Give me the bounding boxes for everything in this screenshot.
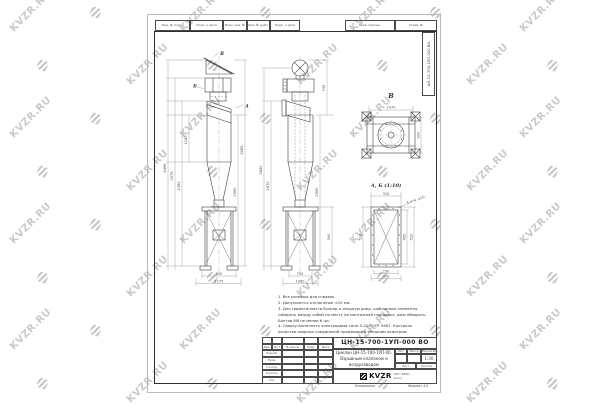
watermark-stamp-icon: [546, 59, 559, 72]
top-stamp-cell: Перв. примен.: [345, 20, 395, 31]
organization-cell: KVZR ООО «КВЗР» kvzr.ru: [333, 369, 437, 384]
watermark-stamp-icon: [36, 165, 49, 178]
watermark-stamp-icon: [89, 112, 102, 125]
watermark-text: KVZR.RU: [518, 307, 564, 353]
watermark-text: KVZR.RU: [518, 201, 564, 247]
watermark-stamp-icon: [546, 165, 559, 178]
margin-designation-cell: ЦН-15-700-1УП-000 ВО: [422, 32, 435, 96]
watermark-text: KVZR.RU: [8, 307, 54, 353]
signature-cell: [318, 364, 333, 371]
margin-designation-text: ЦН-15-700-1УП-000 ВО: [427, 41, 431, 86]
watermark-text: KVZR.RU: [518, 95, 564, 141]
name-line: воздуховодом: [349, 362, 379, 368]
watermark-stamp-icon: [546, 377, 559, 390]
watermark-stamp-icon: [36, 271, 49, 284]
signature-cell: [304, 350, 318, 357]
watermark-text: KVZR.RU: [8, 95, 54, 141]
signature-cell: [282, 357, 304, 364]
watermark-stamp-icon: [89, 6, 102, 19]
mass-value: [407, 354, 421, 363]
signature-cell: [318, 337, 333, 344]
signature-cell: [282, 350, 304, 357]
signature-cell: Пров.: [262, 357, 282, 364]
watermark-text: KVZR.RU: [465, 254, 511, 300]
top-stamp-cell: Справ. №: [395, 20, 437, 31]
notes-block: 1. Все размеры для справок.2. Допускаетс…: [278, 294, 428, 335]
watermark-text: KVZR.RU: [8, 0, 54, 34]
watermark-stamp-icon: [89, 218, 102, 231]
note-line: 4. Сварку выполнять электродами типа Э-4…: [278, 323, 428, 335]
signature-cell: [304, 357, 318, 364]
logo-subtext-2: kvzr.ru: [394, 377, 410, 380]
watermark-stamp-icon: [36, 377, 49, 390]
watermark-text: KVZR.RU: [465, 148, 511, 194]
signature-cell: [272, 337, 282, 344]
signature-cell: [304, 370, 318, 377]
signature-cell: [262, 337, 272, 344]
signature-cell: [304, 364, 318, 371]
signature-cell: Т.контр.: [262, 364, 282, 371]
signature-cell: [282, 364, 304, 371]
signature-cell: Н.контр.: [262, 370, 282, 377]
signature-cell: [304, 337, 318, 344]
watermark-text: KVZR.RU: [518, 0, 564, 34]
watermark-text: KVZR.RU: [465, 360, 511, 405]
titleblock-name: Циклон ЦН-15-700-1УП-00. Взрывным клапан…: [333, 349, 395, 369]
watermark-stamp-icon: [36, 59, 49, 72]
signature-cell: [318, 377, 333, 384]
signature-cell: Утв.: [262, 377, 282, 384]
signature-cell: [304, 377, 318, 384]
signature-cell: [282, 370, 304, 377]
watermark-text: KVZR.RU: [8, 201, 54, 247]
signature-cell: [318, 370, 333, 377]
top-stamp-cell: Инв. № дубл.: [247, 20, 270, 31]
signature-cell: [318, 350, 333, 357]
signature-cell: [282, 377, 304, 384]
page: { "watermark": { "text": "KVZR.RU", "col…: [0, 0, 600, 400]
kvzr-logo-text: KVZR: [369, 373, 392, 380]
kvzr-logo: KVZR ООО «КВЗР» kvzr.ru: [360, 373, 410, 380]
signature-cell: Разраб.: [262, 350, 282, 357]
scale-value: 1:30: [421, 354, 437, 363]
watermark-text: KVZR.RU: [465, 42, 511, 88]
titleblock-designation: ЦН-15-700-1УП-000 ВО: [333, 337, 437, 349]
top-stamp-cell: Инв. № подл.: [155, 20, 190, 31]
copied-label: Копировал: [345, 384, 385, 390]
format-label: Формат А3: [398, 384, 438, 390]
watermark-stamp-icon: [89, 324, 102, 337]
top-stamp-cell: Подп. и дата: [270, 20, 300, 31]
kvzr-logo-icon: [360, 373, 367, 380]
signature-cell: [318, 357, 333, 364]
signature-table: Изм.Лист№ докум.Подп.ДатаРазраб.Пров.Т.к…: [262, 337, 333, 384]
watermark-stamp-icon: [546, 271, 559, 284]
note-line: 3. Для герметичности бункер и опорную ра…: [278, 306, 428, 324]
signature-cell: [282, 337, 304, 344]
top-stamp-cell: Взам. инв. №: [223, 20, 247, 31]
lit-value: [395, 354, 407, 363]
top-stamp-cell: Подп. и дата: [190, 20, 223, 31]
